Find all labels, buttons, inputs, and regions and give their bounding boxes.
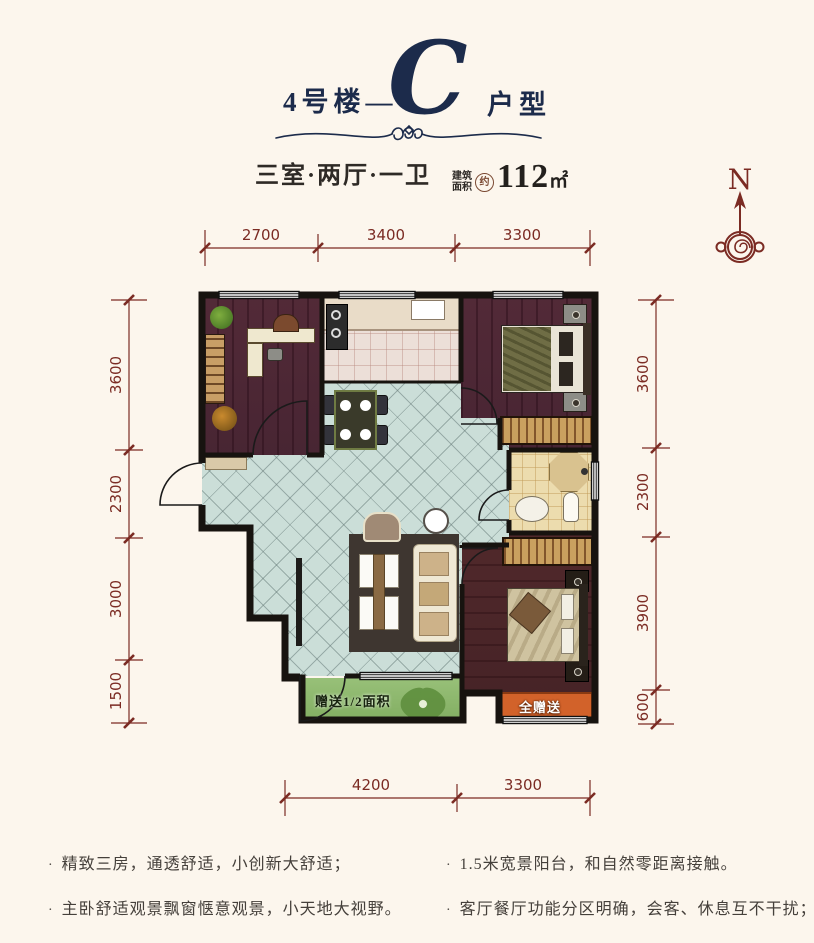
divider-flourish-icon — [272, 121, 545, 147]
bed-north-headboard — [583, 323, 591, 395]
pillow — [559, 332, 573, 356]
dim-top-3: 3300 — [503, 226, 541, 244]
page-title-suffix: 户型 — [487, 83, 551, 122]
pillow — [561, 628, 574, 654]
feature-item: ·客厅餐厅功能分区明确，会客、休息互不干扰； — [446, 895, 814, 919]
page-title-letter: C — [388, 28, 468, 128]
dimension-top: 2700 3400 3300 — [190, 218, 610, 272]
bed-north-blanket — [503, 327, 551, 391]
sofa-cushion — [419, 552, 449, 576]
bullet-icon: · — [48, 858, 54, 873]
dim-bottom-1: 4200 — [352, 776, 390, 794]
dim-bottom-2: 3300 — [504, 776, 542, 794]
nightstand — [563, 304, 587, 324]
nightstand — [563, 392, 587, 412]
dim-left-4: 1500 — [107, 672, 125, 710]
feature-item: ·精致三房，通透舒适，小创新大舒适； — [48, 850, 438, 874]
page-title-prefix: 4号楼— — [283, 80, 398, 119]
dim-left-1: 3600 — [107, 356, 125, 394]
floor-plan: 赠送1/2面积 全赠送 — [197, 292, 598, 728]
plant-icon — [212, 406, 237, 431]
subtitle-rooms: 三室·两厅·一卫 — [255, 155, 431, 190]
burner-icon — [331, 328, 341, 338]
fan-icon — [423, 508, 449, 534]
area-label: 建筑面积 — [452, 172, 472, 193]
toilet — [563, 492, 579, 522]
plate-icon — [360, 429, 371, 440]
plate-icon — [360, 400, 371, 411]
area-unit: ㎡ — [549, 171, 568, 192]
features-right: ·1.5米宽景阳台，和自然零距离接触。 ·客厅餐厅功能分区明确，会客、休息互不干… — [446, 850, 814, 940]
bathroom-sink — [515, 496, 549, 522]
dim-right-2: 2300 — [634, 473, 652, 511]
balcony-plant-icon — [395, 680, 451, 722]
bullet-icon: · — [446, 858, 452, 873]
dim-right-4: 600 — [634, 693, 652, 722]
bullet-icon: · — [48, 903, 54, 918]
dimension-right: 3600 2300 3900 600 — [630, 290, 684, 735]
dim-left-3: 3000 — [107, 580, 125, 618]
subtitle-rooms-text: 三室·两厅·一卫 — [255, 163, 431, 189]
desk-chair — [267, 348, 283, 361]
dining-table — [334, 390, 377, 450]
pillow — [561, 594, 574, 620]
pillow — [559, 362, 573, 386]
bed-south-headboard — [579, 584, 588, 666]
shower-head-icon — [581, 468, 588, 475]
armchair — [363, 512, 401, 542]
dim-right-3: 3900 — [634, 594, 652, 632]
feature-item: ·主卧舒适观景飘窗惬意观景，小天地大视野。 — [48, 895, 438, 919]
plate-icon — [340, 429, 351, 440]
bay-gift-label: 全赠送 — [519, 697, 561, 716]
compass-icon: N — [698, 163, 782, 267]
bullet-icon: · — [446, 903, 452, 918]
features-left: ·精致三房，通透舒适，小创新大舒适； ·主卧舒适观景飘窗惬意观景，小天地大视野。 — [48, 850, 438, 940]
furniture-layer — [197, 292, 598, 728]
sofa-cushion — [419, 612, 449, 636]
plant-icon — [210, 306, 233, 329]
title-letter-text: C — [388, 19, 468, 137]
area-block: 建筑面积约112㎡ — [452, 158, 568, 196]
title-prefix-text: 4号楼— — [283, 87, 398, 117]
desk-hutch — [273, 314, 299, 332]
dim-top-2: 3400 — [367, 226, 405, 244]
approx-circle: 约 — [475, 173, 494, 192]
title-suffix-text: 户型 — [487, 90, 551, 120]
feature-item: ·1.5米宽景阳台，和自然零距离接触。 — [446, 850, 814, 874]
balcony-gift-label: 赠送1/2面积 — [315, 691, 391, 710]
dimension-bottom: 4200 3300 — [270, 772, 610, 822]
desk-return — [247, 343, 263, 377]
entry-cabinet — [205, 457, 247, 470]
plate-icon — [340, 400, 351, 411]
area-value: 112 — [497, 158, 549, 195]
burner-icon — [331, 310, 341, 320]
sofa-cushion — [419, 582, 449, 606]
dimension-left: 3600 2300 3000 1500 — [103, 290, 157, 735]
wardrobe — [502, 537, 593, 566]
coffee-table-runner — [373, 554, 385, 630]
bookshelf — [205, 334, 225, 404]
wardrobe — [500, 416, 593, 445]
dim-top-1: 2700 — [242, 226, 280, 244]
dim-right-1: 3600 — [634, 355, 652, 393]
kitchen-sink — [411, 300, 445, 320]
dim-left-2: 2300 — [107, 475, 125, 513]
tv — [296, 558, 302, 646]
